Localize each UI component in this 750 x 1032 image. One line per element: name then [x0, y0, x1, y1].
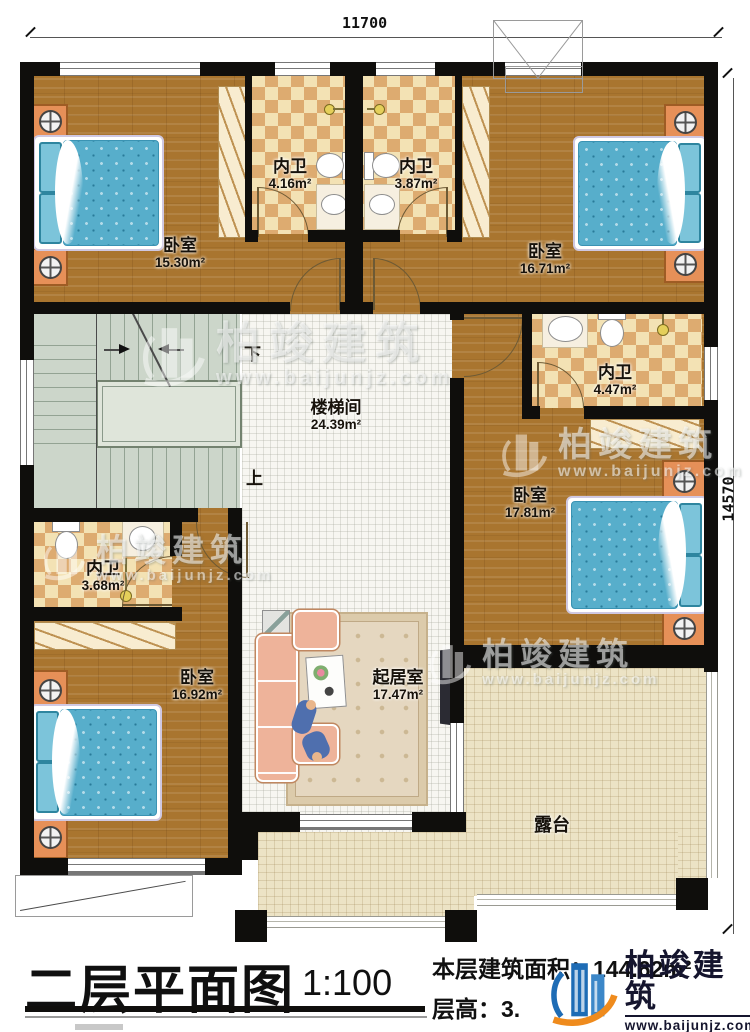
room-name: 卧室 [482, 486, 578, 505]
lamp-icon [674, 111, 697, 134]
label-bath1: 内卫 4.16m² [255, 157, 325, 191]
room-area: 15.30m² [130, 255, 230, 270]
room-area: 16.71m² [495, 261, 595, 276]
dim-tick [722, 68, 733, 79]
wardrobe-bedroom4 [34, 622, 176, 650]
bed-bedroom2 [573, 136, 707, 251]
lamp-icon [674, 253, 697, 276]
terrace-floor-strip2 [458, 832, 678, 894]
roof-window-symbol [493, 20, 583, 79]
wall-bath2-bedroom2 [455, 76, 462, 234]
wardrobe-bedroom2 [462, 86, 490, 238]
wall-bath4-right [170, 520, 182, 556]
roof-window-vlines [494, 21, 582, 78]
wall-corner-block [242, 832, 258, 860]
wall-mid-a [20, 302, 290, 314]
toilet-icon [600, 319, 624, 347]
railing-bottom-left [267, 916, 445, 928]
room-area: 4.47m² [580, 382, 650, 397]
person-head [312, 752, 322, 762]
wall-bath3-left [522, 306, 532, 418]
label-bedroom4: 卧室 16.92m² [147, 668, 247, 702]
title-shadow-strip [75, 1024, 123, 1030]
sink-icon [129, 526, 156, 551]
wall-hall-right-a [450, 314, 464, 320]
floor-height-text: 层高：3. [432, 990, 520, 1024]
room-area: 3.87m² [381, 176, 451, 191]
room-name: 卧室 [147, 668, 247, 687]
brand-logo: 柏竣建筑 www.baijunjz.com [548, 950, 750, 1032]
stair-down-label: 下 [244, 340, 261, 365]
window-bedroom1 [60, 62, 200, 76]
brand-logo-icon [548, 953, 619, 1031]
window-living-terrace [450, 723, 464, 812]
room-area: 16.92m² [147, 687, 247, 702]
sink-icon [548, 316, 583, 342]
door-leaf [464, 317, 522, 319]
wall-bedroom4-bottom-b [205, 858, 242, 875]
lamp-icon [39, 826, 62, 849]
label-living: 起居室 17.47m² [348, 668, 448, 702]
brand-name: 柏竣建筑 [625, 950, 750, 1012]
window-bedroom4 [68, 858, 205, 875]
bed-bedroom4 [30, 704, 162, 821]
toilet-icon [55, 531, 78, 559]
nightstand [32, 248, 68, 286]
lamp-icon [39, 679, 62, 702]
lamp-icon [673, 470, 696, 493]
light-pull-icon [324, 104, 335, 115]
stair-arrow-line-left [104, 349, 119, 351]
label-terrace: 露台 [520, 815, 584, 835]
room-name: 卧室 [130, 236, 230, 255]
terrace-pillar [445, 910, 477, 942]
room-name: 露台 [520, 815, 584, 835]
wall-hall-right-b [450, 378, 464, 723]
dim-tick [25, 27, 36, 38]
stair-arrow-line-right [169, 349, 184, 351]
room-name: 内卫 [580, 363, 650, 382]
flowers-icon [313, 665, 329, 681]
label-bath2: 内卫 3.87m² [381, 157, 451, 191]
terrace-pillar [676, 878, 708, 910]
label-bath4: 内卫 3.68m² [68, 559, 138, 593]
wall-bedroom1-bath1 [245, 76, 252, 234]
canopy-diagonal [20, 881, 186, 911]
terrace-floor-strip [258, 832, 474, 916]
room-name: 内卫 [255, 157, 325, 176]
room-area: 3.68m² [68, 578, 138, 593]
window-staircase [20, 360, 34, 465]
label-bedroom2: 卧室 16.71m² [495, 242, 595, 276]
dim-tick [722, 924, 733, 935]
sheet [657, 141, 685, 244]
nightstand [32, 815, 68, 859]
label-staircase: 楼梯间 24.39m² [286, 398, 386, 432]
label-bedroom1: 卧室 15.30m² [130, 236, 230, 270]
bed-bedroom3 [566, 496, 708, 614]
window-living [300, 814, 412, 830]
light-pull-icon [374, 104, 385, 115]
nightstand [664, 246, 706, 283]
lamp-icon [39, 110, 62, 133]
room-area: 24.39m² [286, 417, 386, 432]
wall-bedroom4-bottom-a [20, 858, 68, 875]
door-leaf [537, 362, 539, 407]
nightstand [662, 610, 706, 647]
stair-up-label: 上 [246, 464, 263, 489]
room-name: 起居室 [348, 668, 448, 687]
dimension-right-value: 14570 [720, 476, 738, 521]
armchair [293, 610, 339, 650]
stair-treads-lower [96, 444, 240, 508]
wall-living-bottom-b [412, 812, 466, 832]
wall-mid-c [420, 302, 718, 314]
stair-flight-divider [96, 314, 97, 508]
wall-living-bottom-a [242, 812, 300, 832]
wall-bath3-bottom-a [522, 406, 540, 419]
wall-bath1-bath2 [345, 76, 363, 314]
sink-icon [321, 194, 347, 215]
stair-void [96, 380, 242, 448]
room-area: 4.16m² [255, 176, 325, 191]
stair-treads-left [34, 340, 96, 444]
sheet [658, 501, 686, 607]
wall-bedroom3-bottom [450, 645, 718, 668]
teapot-icon [324, 686, 334, 696]
window-bath3 [704, 347, 718, 400]
dimension-top-value: 11700 [342, 14, 387, 32]
stair-arrow-right [158, 344, 169, 354]
title-underline-thick [25, 1006, 425, 1012]
lamp-icon [39, 256, 62, 279]
wall-bath4-bottom [32, 607, 182, 621]
bed-bedroom1 [33, 135, 164, 251]
room-name: 内卫 [381, 157, 451, 176]
scale-text: 1:100 [302, 962, 392, 1004]
room-area: 17.81m² [482, 505, 578, 520]
room-name: 内卫 [68, 559, 138, 578]
sink-icon [369, 194, 395, 215]
dim-tick [713, 27, 724, 38]
door-leaf [246, 522, 248, 577]
wardrobe-bedroom1 [218, 86, 246, 238]
dimension-line-top [30, 37, 722, 38]
room-area: 17.47m² [348, 687, 448, 702]
terrace-pillar [235, 910, 267, 942]
person-head [306, 700, 316, 710]
label-bedroom3: 卧室 17.81m² [482, 486, 578, 520]
brand-website: www.baijunjz.com [625, 1015, 750, 1032]
window-bath2 [376, 62, 435, 76]
window-bath1 [275, 62, 330, 76]
canopy-below [15, 875, 193, 917]
light-cord [367, 108, 375, 110]
wardrobe-bedroom3 [590, 419, 700, 449]
nightstand [32, 104, 68, 139]
wall-left [20, 62, 34, 875]
lamp-icon [673, 617, 696, 640]
room-name: 楼梯间 [286, 398, 386, 417]
stair-arrow-left [119, 344, 130, 354]
light-pull-icon [657, 324, 669, 336]
wall-bath3-bottom-b [584, 406, 718, 419]
railing-bottom-right [477, 894, 676, 906]
railing-right [706, 668, 718, 878]
label-bath3: 内卫 4.47m² [580, 363, 650, 397]
room-name: 卧室 [495, 242, 595, 261]
floor-plan-page: 11700 14570 下 上 [0, 0, 750, 1032]
sofa-long [256, 634, 298, 782]
door-leaf [122, 604, 172, 606]
title-underline-thin [25, 1016, 427, 1018]
door-leaf [373, 258, 375, 310]
